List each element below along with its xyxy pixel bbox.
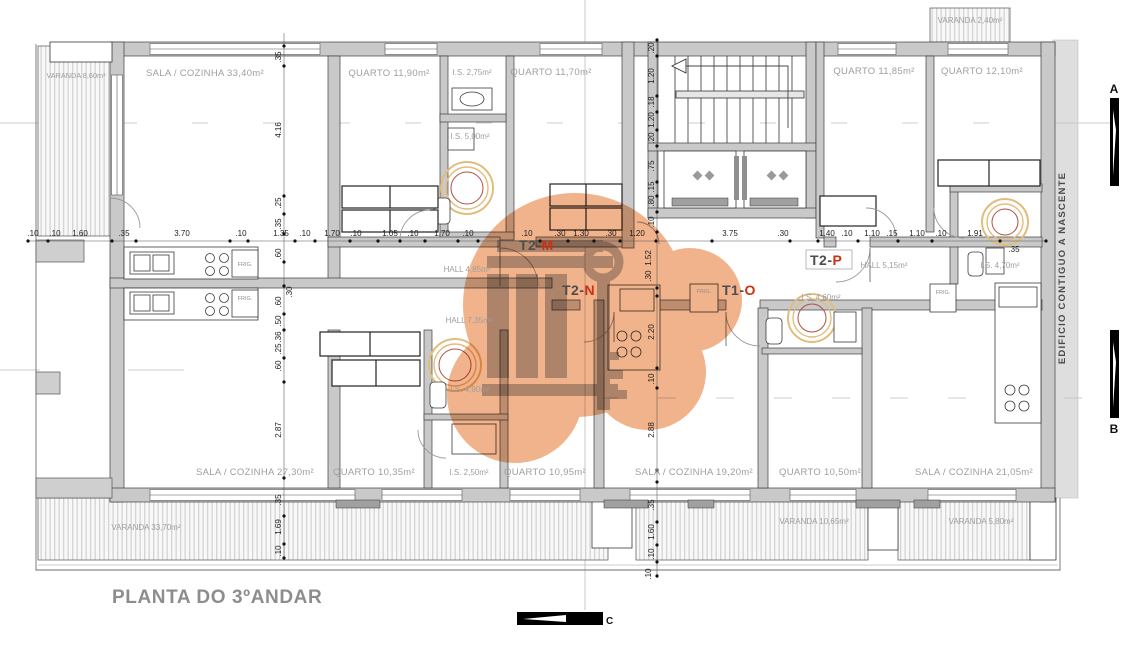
dim-label: .10	[647, 216, 656, 228]
dim-label: .10	[299, 229, 311, 238]
dim-label: .35	[118, 229, 130, 238]
dim-label: 4.16	[274, 122, 283, 138]
section-marker-a-label: A	[1110, 82, 1119, 96]
unit-label-t2n: T2-N	[562, 282, 595, 298]
wall	[926, 56, 934, 232]
wall	[328, 237, 500, 247]
room-label-sala-1920: SALA / COZINHA 19,20m²	[635, 467, 753, 478]
dim-label: 1.69	[274, 519, 283, 535]
room-label-hall-485: HALL 4,85m²	[444, 265, 491, 274]
room-label-is-250: I.S. 2,50m²	[449, 468, 488, 477]
room-label-is-490: I.S. 4,90m²	[450, 385, 489, 394]
dim-label: .10	[274, 545, 283, 557]
dim-label: 1.91	[967, 229, 983, 238]
dim-label: 1.05	[382, 229, 398, 238]
dim-label: .10	[462, 229, 474, 238]
dim-label: .10	[407, 229, 419, 238]
dim-label: .20	[647, 132, 656, 144]
balcony-pillar	[1030, 498, 1056, 560]
wall	[36, 478, 112, 498]
fridge-label: FRIG.	[936, 290, 951, 296]
dim-label: .30	[777, 229, 789, 238]
dim-label: 2.20	[647, 324, 656, 340]
room-label-is-275: I.S. 2,75m²	[452, 68, 491, 77]
room-label-sala-2105: SALA / COZINHA 21,05m²	[915, 467, 1033, 478]
room-label-quarto-1035: QUARTO 10,35m²	[333, 467, 415, 478]
balcony-bottom-middle	[636, 498, 868, 560]
wall	[36, 240, 84, 262]
elevator-shafts	[664, 151, 806, 208]
dim-label: 1.10	[864, 229, 880, 238]
dim-label: .10	[235, 229, 247, 238]
dim-label: .10	[49, 229, 61, 238]
dim-label: 1.60	[72, 229, 88, 238]
dim-label: .10	[644, 568, 653, 580]
dim-label: .35	[647, 499, 656, 511]
room-label-quarto-1050: QUARTO 10,50m²	[779, 467, 861, 478]
unit-label-t2m: T2-M	[519, 237, 554, 253]
adjacent-building-note: EDIFICIO CONTIGUO A NASCENTE	[1057, 172, 1068, 364]
dim-label: 3.70	[174, 229, 190, 238]
room-label-is-500: I.S. 5,00m²	[450, 132, 489, 141]
dim-label: 1.20	[629, 229, 645, 238]
fridge	[930, 284, 956, 312]
dim-label: 1.70	[324, 229, 340, 238]
dim-label: .35	[274, 494, 283, 506]
dim-label: .10	[841, 229, 853, 238]
room-label-hall-735: HALL 7,35m²	[446, 316, 493, 325]
dim-label: 2.87	[274, 422, 283, 438]
wall	[806, 42, 816, 218]
dim-label: .15	[886, 229, 898, 238]
dim-label: 1.52	[644, 250, 653, 266]
room-label-hall-515: HALL 5,15m²	[861, 261, 908, 270]
dim-label: .18	[647, 96, 656, 108]
watermark-logo	[482, 240, 627, 410]
dim-label: 1.30	[573, 229, 589, 238]
dim-label: 1.20	[647, 68, 656, 84]
dim-label: 2.88	[647, 422, 656, 438]
room-label-sala-3340: SALA / COZINHA 33,40m²	[146, 68, 264, 79]
unit-label-t1o: T1-O	[722, 282, 756, 298]
wall	[950, 184, 958, 284]
dim-label: 1.20	[647, 112, 656, 128]
kitchen-counter-lower-left	[124, 288, 258, 320]
dim-label: 1.70	[434, 229, 450, 238]
dim-label: .80	[647, 195, 656, 207]
dim-label: 1.40	[819, 229, 835, 238]
room-label-quarto-1095: QUARTO 10,95m²	[504, 467, 586, 478]
wall	[440, 114, 506, 122]
dim-label: .36	[274, 331, 283, 343]
planter-box	[50, 42, 112, 62]
dim-label: 1.10	[909, 229, 925, 238]
page-title: PLANTA DO 3ºANDAR	[112, 587, 322, 608]
room-label-varanda-580: VARANDA 5,80m²	[949, 517, 1014, 526]
room-label-varanda-topleft: VARANDA 8,60m²	[46, 71, 106, 80]
dim-label: .30	[644, 270, 653, 282]
dim-label: .20	[647, 42, 656, 54]
fridge	[232, 290, 258, 317]
room-label-quarto-1210: QUARTO 12,10m²	[941, 66, 1023, 77]
room-label-quarto-1185: QUARTO 11,85m²	[833, 66, 914, 77]
dim-label: 1.60	[647, 524, 656, 540]
dim-label: .35	[274, 218, 283, 230]
section-marker-c-label: C	[606, 616, 613, 627]
wall	[762, 348, 862, 354]
dim-label: .60	[274, 360, 283, 372]
dim-label: .25	[274, 343, 283, 355]
room-label-varanda-1065: VARANDA 10,65m²	[779, 517, 849, 526]
room-label-is-470: I.S. 4,70m²	[980, 261, 1019, 270]
dim-label: .35	[274, 51, 283, 63]
room-label-sala-2730: SALA / COZINHA 27,30m²	[196, 467, 314, 478]
room-label-varanda-240: VARANDA 2,40m²	[938, 16, 1003, 25]
section-marker-b-label: B	[1110, 422, 1119, 436]
dim-label: .35	[1008, 245, 1020, 254]
room-label-varanda-3370: VARANDA 33,70m²	[111, 523, 181, 532]
fridge-label: FRIG.	[238, 262, 253, 268]
wall	[1041, 42, 1055, 502]
room-label-quarto-1190: QUARTO 11,90m²	[348, 68, 429, 79]
unit-label-t2p: T2-P	[810, 252, 842, 268]
dim-label: .30	[554, 229, 566, 238]
dim-label: .10	[27, 229, 39, 238]
wall	[648, 143, 816, 151]
dim-label: .10	[350, 229, 362, 238]
elevator-door-rail	[734, 156, 739, 200]
wall	[36, 372, 60, 394]
dim-label: .25	[274, 197, 283, 209]
floor-plan-page: .10 .10 1.60 .35 3.70 .10 1.35 .10 1.70 …	[0, 0, 1121, 647]
elevator-door-rail	[742, 156, 747, 200]
dim-label: .60	[274, 296, 283, 308]
fridge-label: FRIG.	[697, 289, 712, 295]
dim-label: .30	[605, 229, 617, 238]
room-label-is-460: I.S. 4,60m²	[801, 293, 840, 302]
stair-landing-rail	[676, 91, 804, 98]
fridge-label: FRIG.	[238, 296, 253, 302]
balcony-top-right	[930, 8, 1010, 42]
dim-label: .10	[647, 548, 656, 560]
dim-label: .75	[647, 160, 656, 172]
dim-label: .50	[274, 315, 283, 327]
dim-label: .60	[274, 248, 283, 260]
floor-plan-drawing: .10 .10 1.60 .35 3.70 .10 1.35 .10 1.70 …	[0, 0, 1121, 647]
wall	[824, 237, 836, 247]
dim-label: .30	[285, 286, 294, 298]
stair-core	[664, 56, 806, 208]
wall	[862, 308, 872, 488]
stair-direction-arrow	[672, 59, 686, 73]
wall	[648, 208, 816, 218]
dim-label: .10	[935, 229, 947, 238]
wall	[506, 56, 514, 238]
dim-label: .15	[647, 181, 656, 193]
wall	[328, 56, 340, 282]
dim-label: 3.75	[722, 229, 738, 238]
dim-label: .10	[647, 373, 656, 385]
room-label-quarto-1170: QUARTO 11,70m²	[510, 67, 591, 78]
stair-treads	[675, 56, 792, 143]
